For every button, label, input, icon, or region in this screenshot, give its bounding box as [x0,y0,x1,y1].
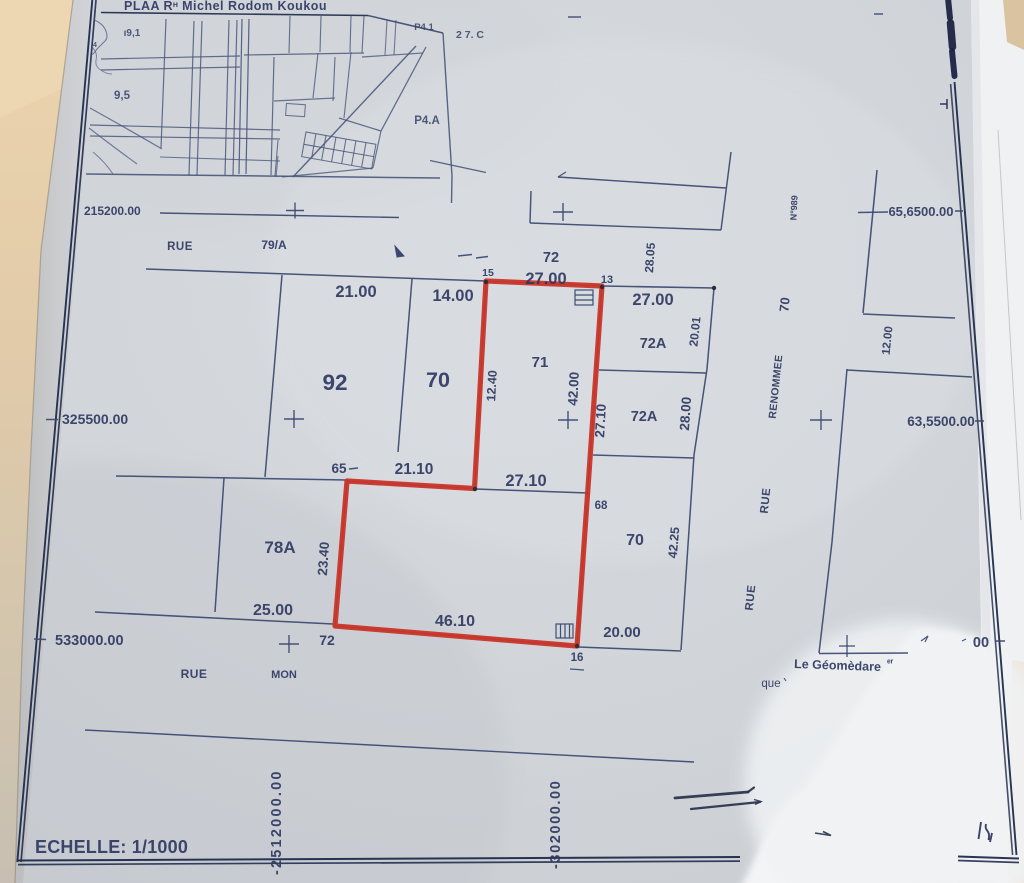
svg-text:23.40: 23.40 [315,541,332,576]
svg-text:215200.00: 215200.00 [84,204,141,218]
svg-text:P4.A: P4.A [414,115,440,127]
svg-text:16: 16 [571,652,584,664]
svg-text:13: 13 [601,274,613,286]
svg-text:4: 4 [93,42,97,49]
svg-text:70: 70 [426,368,450,392]
svg-text:-2512000.00: -2512000.00 [269,769,285,875]
svg-text:68: 68 [595,500,608,512]
svg-text:27.00: 27.00 [525,270,566,288]
svg-text:-302000.00: -302000.00 [548,780,564,869]
svg-text:00: 00 [973,635,989,651]
svg-text:46.10: 46.10 [435,613,475,630]
svg-text:N°989: N°989 [788,195,799,221]
svg-text:15: 15 [482,267,494,279]
svg-text:9,5: 9,5 [114,90,131,102]
svg-text:63,5500.00: 63,5500.00 [907,414,975,429]
svg-text:27.10: 27.10 [505,472,546,490]
svg-text:72A: 72A [640,336,667,352]
svg-text:65: 65 [331,461,347,476]
svg-text:ı9,1: ı9,1 [124,28,141,39]
svg-text:325500.00: 325500.00 [62,411,128,427]
svg-text:79/A: 79/A [261,238,287,252]
svg-text:RUE: RUE [167,241,193,253]
svg-text:28.00: 28.00 [677,396,694,431]
svg-text:28.05: 28.05 [642,242,658,273]
svg-text:que: que [761,678,780,690]
svg-text:27.00: 27.00 [632,291,673,309]
svg-text:RUE: RUE [181,667,208,681]
svg-text:72A: 72A [631,409,658,425]
svg-text:27.10: 27.10 [592,403,609,438]
svg-text:21.10: 21.10 [395,461,434,478]
svg-text:70: 70 [626,532,644,549]
svg-text:65,6500.00: 65,6500.00 [888,204,953,219]
svg-text:MON: MON [271,669,297,681]
svg-text:P4.1: P4.1 [414,22,434,33]
svg-text:78A: 78A [264,538,295,557]
svg-text:533000.00: 533000.00 [55,633,124,649]
svg-text:2 7. C: 2 7. C [456,29,484,41]
svg-text:20.00: 20.00 [603,624,641,641]
svg-text:14.00: 14.00 [432,287,473,305]
svg-text:72: 72 [543,250,559,266]
svg-text:ᵉʳ: ᵉʳ [887,658,894,669]
svg-text:ECHELLE: 1/1000: ECHELLE: 1/1000 [35,837,188,857]
svg-text:42.00: 42.00 [565,371,582,406]
svg-text:21.00: 21.00 [335,283,376,301]
svg-text:71: 71 [532,354,549,371]
svg-text:PLAA Rᵸ Michel Rodom Koukou: PLAA Rᵸ Michel Rodom Koukou [124,0,327,13]
svg-text:72: 72 [319,632,335,648]
svg-text:70: 70 [776,297,792,313]
svg-text:25.00: 25.00 [253,602,293,619]
svg-text:12.40: 12.40 [484,370,500,402]
svg-text:42.25: 42.25 [666,526,683,558]
svg-text:92: 92 [322,370,347,395]
